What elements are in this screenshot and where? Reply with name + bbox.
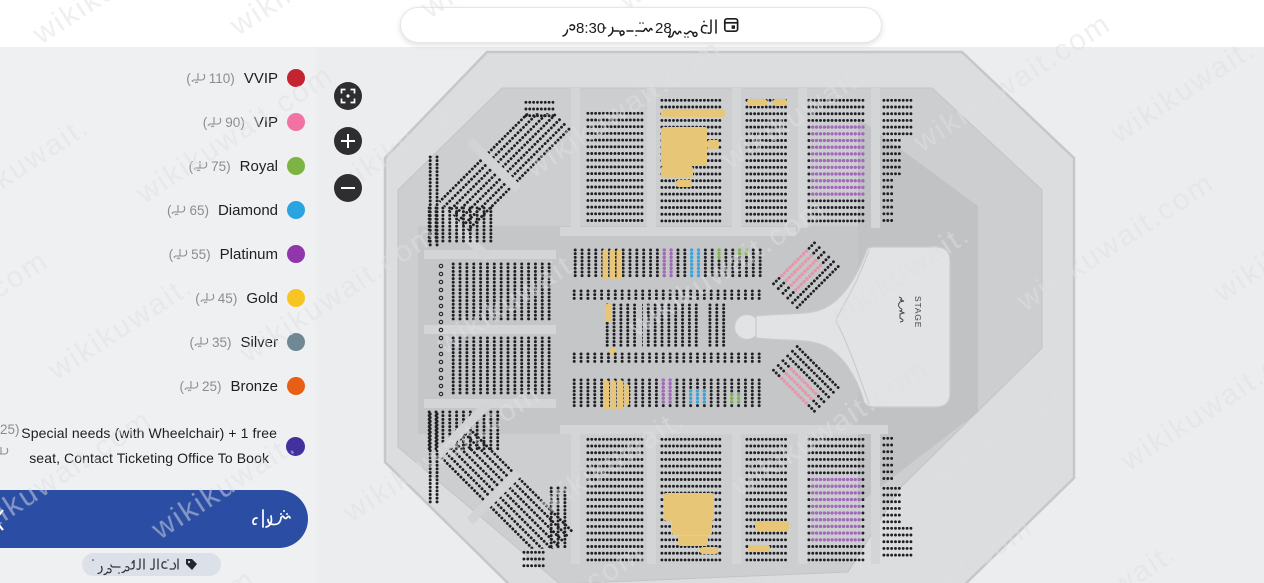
svg-text:STAGE: STAGE — [913, 296, 923, 328]
svg-text:8:30: 8:30 — [576, 20, 605, 37]
svg-text:28: 28 — [655, 20, 672, 37]
